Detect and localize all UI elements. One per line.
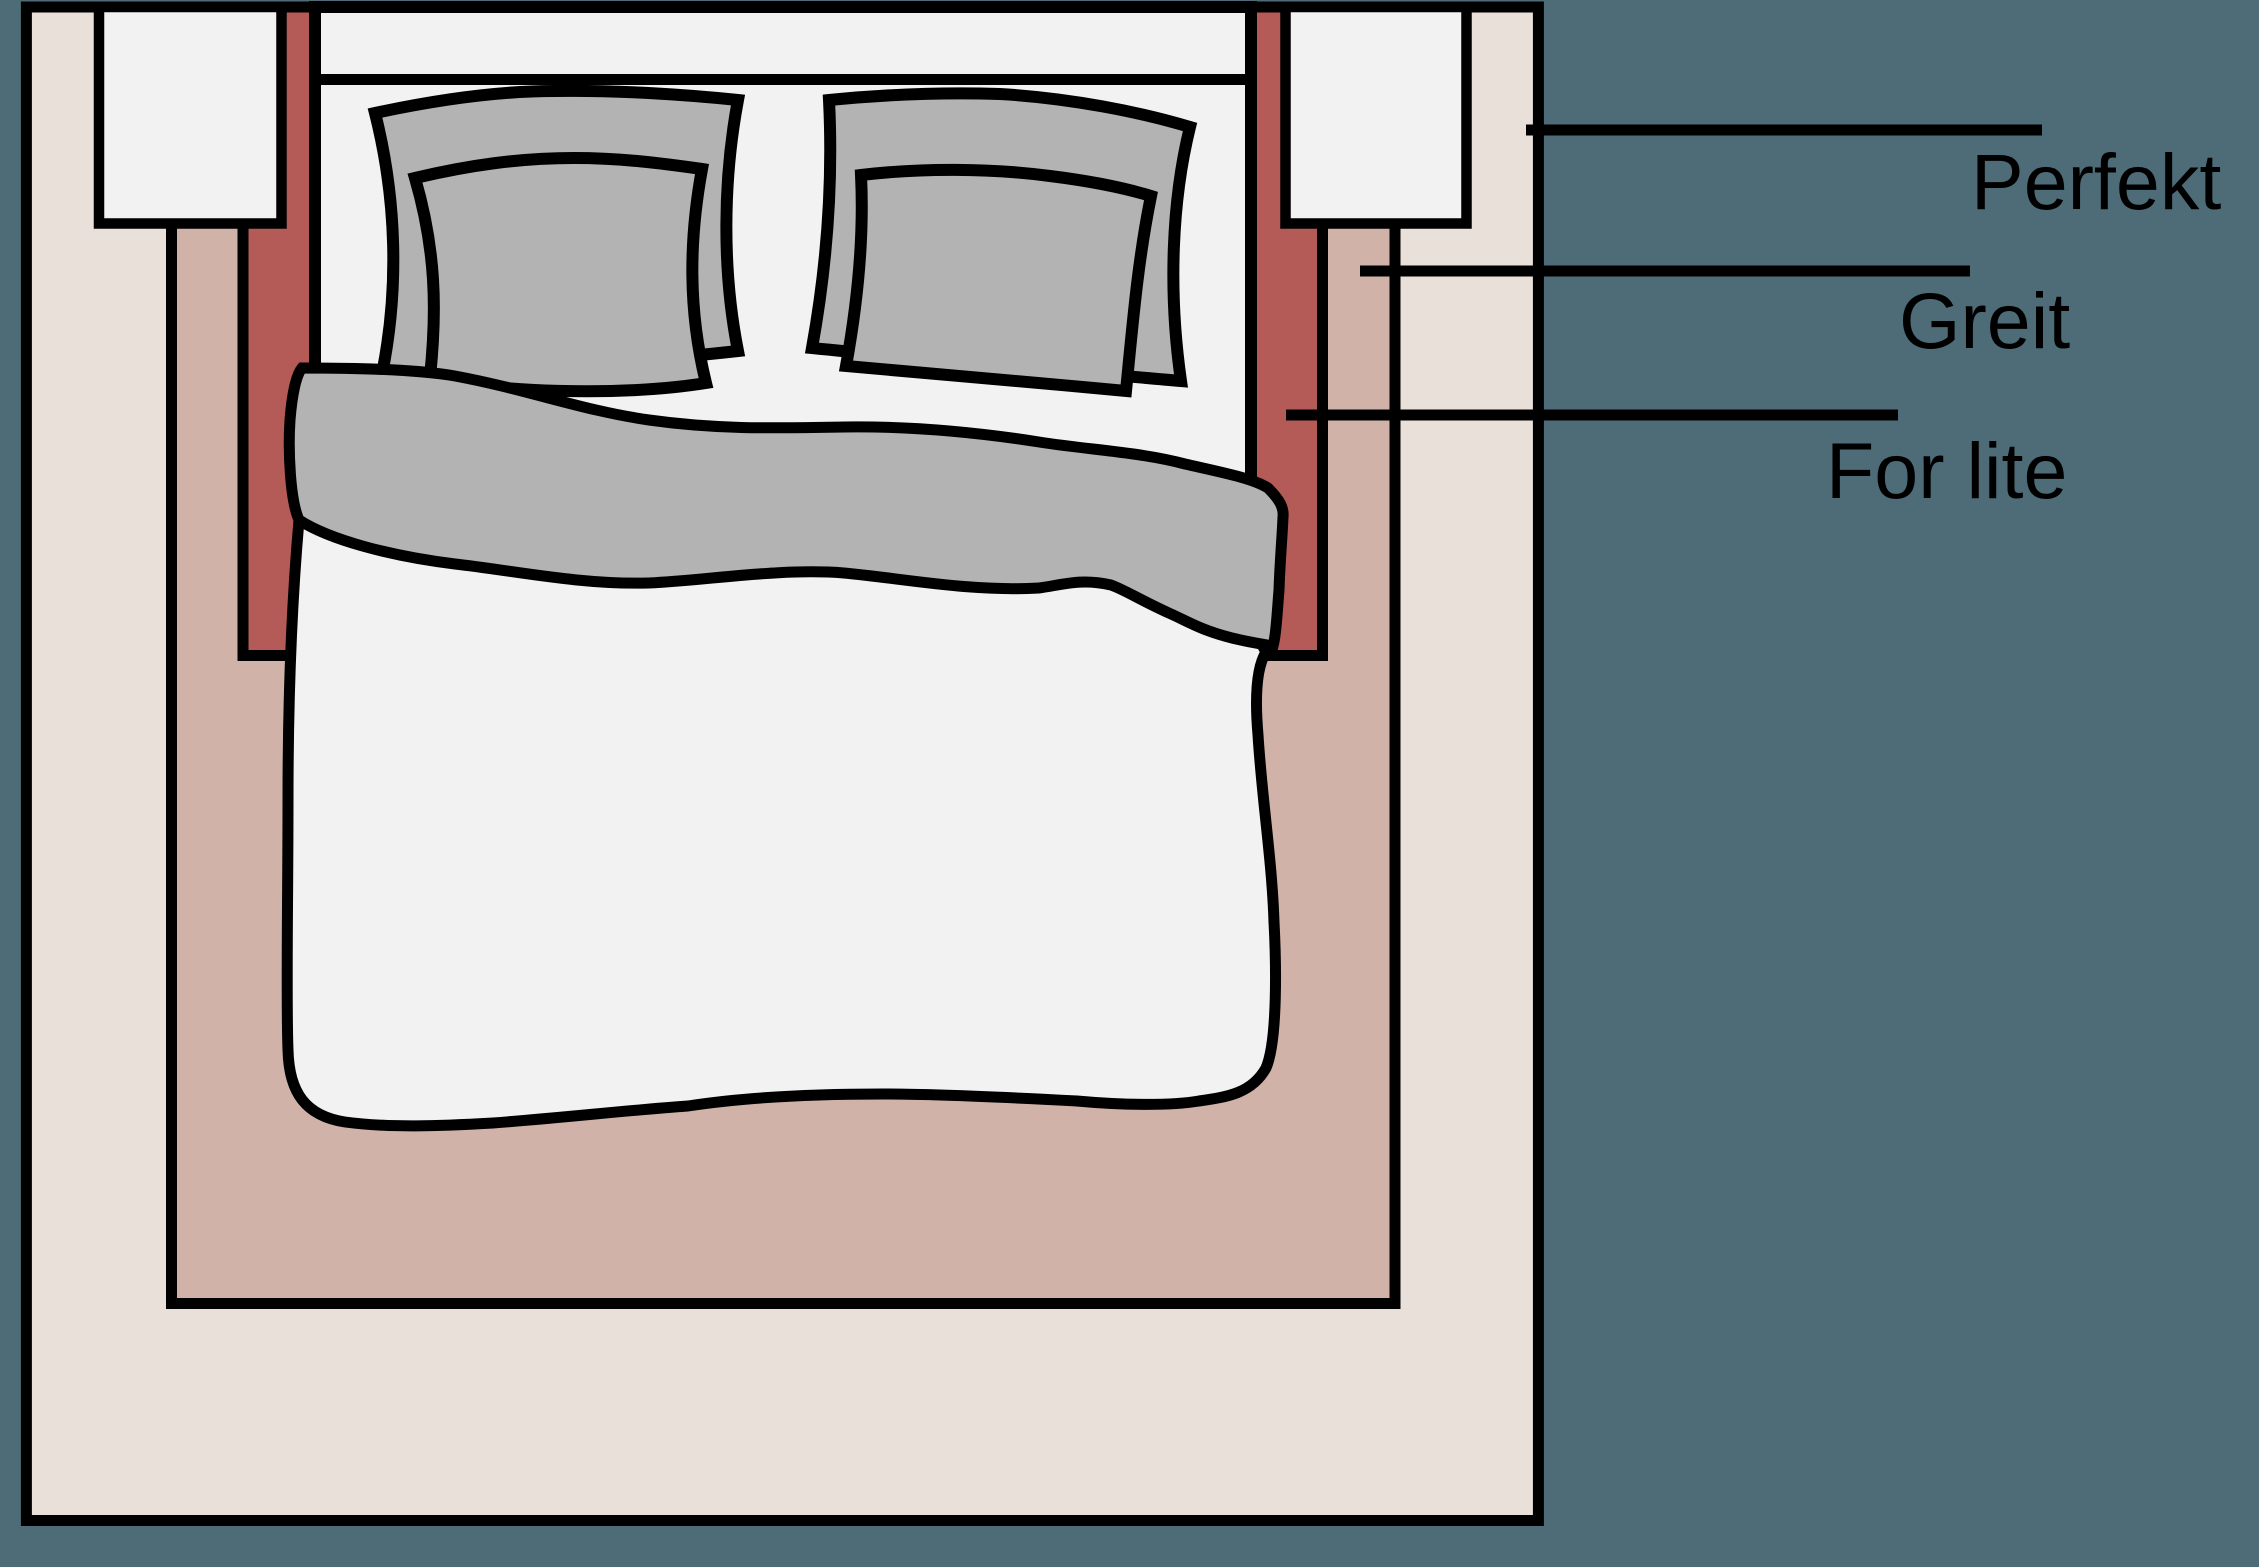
svg-text:For lite: For lite — [1826, 426, 2067, 515]
svg-text:Perfekt: Perfekt — [1971, 137, 2221, 226]
svg-text:Greit: Greit — [1899, 276, 2070, 365]
